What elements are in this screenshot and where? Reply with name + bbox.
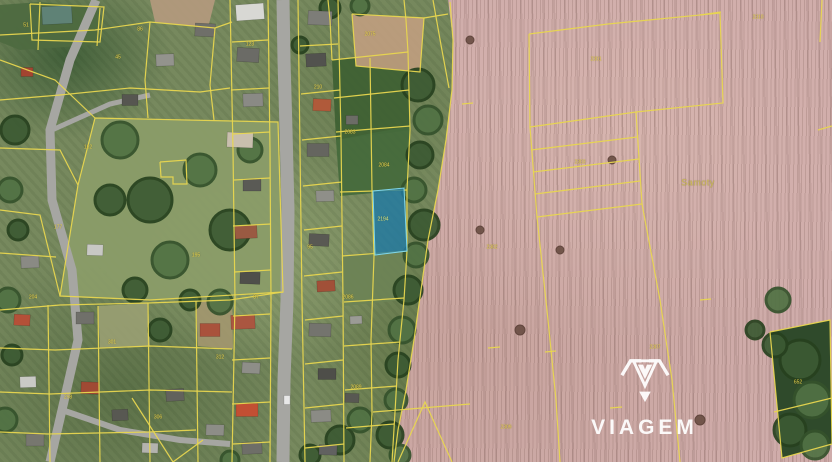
parcel-number-label: 2303	[574, 161, 585, 166]
parcel-number-label: 195	[192, 254, 200, 259]
parcel-number-label: 2309	[500, 426, 511, 431]
parcel-number-label: 210	[314, 86, 322, 91]
parcel-number-label: 87	[253, 296, 259, 301]
parcel-number-label: 2089	[350, 386, 361, 391]
parcel-number-label: 2075	[364, 33, 375, 38]
parcel-number-label: 162	[84, 146, 92, 151]
parcel-number-label: 312	[216, 356, 224, 361]
parcel-number-label: 2301	[590, 58, 601, 63]
parcel-number-label: 2307	[649, 346, 660, 351]
parcel-number-label: 2302	[486, 246, 497, 251]
parcel-number-label: 204	[29, 296, 37, 301]
parcel-number-label: 2084	[378, 164, 389, 169]
parcel-number-label: 2086	[342, 296, 353, 301]
parcel-number-label: 45	[115, 56, 121, 61]
viagem-gem-icon	[616, 356, 674, 406]
parcel-labels-layer: 8612321019516217720430129830631287952083…	[0, 0, 832, 462]
parcel-number-label: 86	[137, 28, 143, 33]
parcel-number-label: 123	[246, 43, 254, 48]
parcel-number-label: 95	[307, 246, 313, 251]
parcel-number-label: 298	[64, 396, 72, 401]
parcel-number-label: 51	[23, 24, 29, 29]
cadastral-map-view: 8612321019516217720430129830631287952083…	[0, 0, 832, 462]
parcel-number-label: 301	[108, 341, 116, 346]
brand-name: VIAGEM	[582, 416, 707, 440]
parcel-number-label: 2310	[752, 16, 763, 21]
parcel-number-label: 2194	[377, 218, 388, 223]
viagem-watermark: VIAGEM	[582, 356, 707, 440]
parcel-number-label: 306	[154, 416, 162, 421]
parcel-number-label: 177	[54, 226, 62, 231]
area-name-label: Samoty	[681, 179, 715, 188]
parcel-number-label: 2083	[344, 131, 355, 136]
parcel-number-label: 652	[794, 381, 802, 386]
